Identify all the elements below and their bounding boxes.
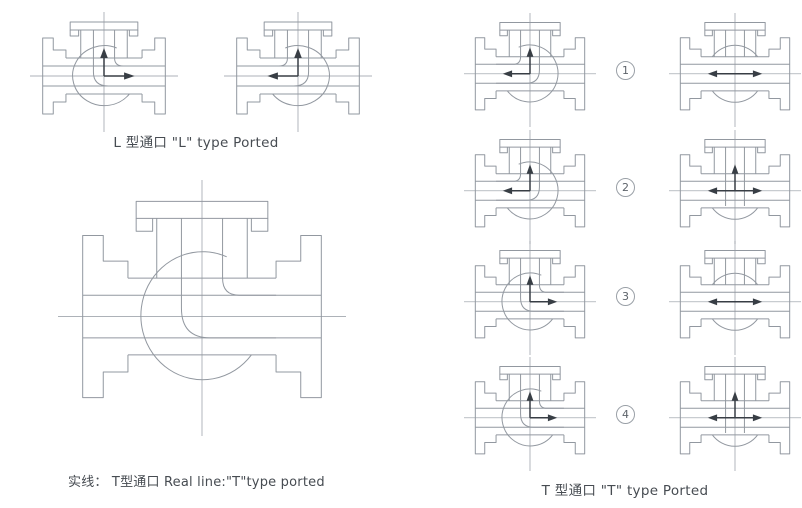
- l-port-valve-up-left: [224, 12, 372, 132]
- grid-row1-right-valve: [669, 13, 801, 127]
- grid-row3-right-valve: [669, 241, 801, 355]
- valve-porting-diagram: L 型通口 "L" type Ported 实线： T型通口 Real line…: [0, 0, 802, 508]
- t-type-caption: T 型通口 "T" type Ported: [505, 479, 745, 499]
- t-port-cross-section: [58, 180, 346, 436]
- circled-number-2: 2: [616, 178, 635, 197]
- grid-row2-left-valve: [464, 130, 596, 244]
- circled-number-4: 4: [616, 405, 635, 424]
- grid-row1-left-valve: [464, 13, 596, 127]
- l-port-valve-up-right: [30, 12, 178, 132]
- l-type-caption: L 型通口 "L" type Ported: [46, 131, 346, 151]
- grid-row4-left-valve: [464, 357, 596, 471]
- circled-number-1: 1: [616, 61, 635, 80]
- circled-number-3: 3: [616, 287, 635, 306]
- grid-row2-right-valve: [669, 130, 801, 244]
- legend-real-line: 实线： T型通口 Real line:"T"type ported: [68, 475, 342, 491]
- line-legend: 实线： T型通口 Real line:"T"type ported 虚线： L型…: [68, 443, 342, 508]
- grid-row4-right-valve: [669, 357, 801, 471]
- grid-row3-left-valve: [464, 241, 596, 355]
